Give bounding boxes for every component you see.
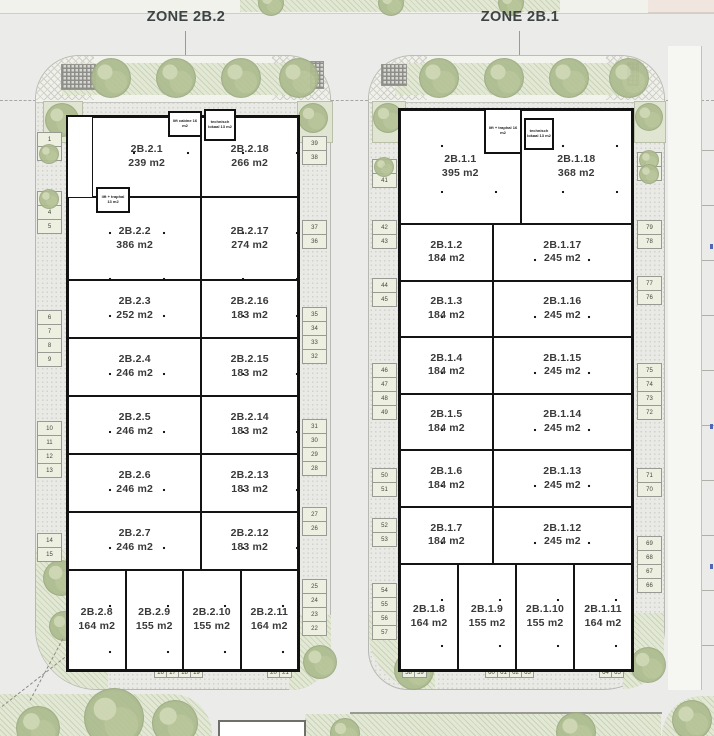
- stall-number: 30: [311, 438, 318, 444]
- parking-stall-26: 26: [302, 521, 327, 536]
- unit-2B.2.8[interactable]: 2B.2.8164 m2: [68, 570, 126, 670]
- site-plan: ZONE 2B.2 ZONE 2B.1: [0, 0, 714, 736]
- parking-stall-75: 75: [637, 363, 662, 378]
- parking-stall-68: 68: [637, 550, 662, 565]
- stall-number: 34: [311, 326, 318, 332]
- stall-number: 10: [46, 426, 53, 432]
- parking-stall-44: 44: [372, 278, 397, 293]
- unit-area: 155 m2: [136, 620, 173, 634]
- parking-stall-8: 8: [37, 338, 62, 353]
- unit-2B.1.12[interactable]: 2B.1.12245 m2: [493, 507, 632, 564]
- stall-number: 29: [311, 452, 318, 458]
- unit-id: 2B.1.14: [543, 408, 581, 422]
- unit-2B.1.3[interactable]: 2B.1.3184 m2: [400, 281, 493, 338]
- utility-room-lift: lift cabine 16 m2: [168, 111, 202, 137]
- unit-row: 2B.1.5184 m22B.1.14245 m2: [400, 394, 632, 451]
- stall-number: 15: [46, 552, 53, 558]
- tree-icon: [221, 58, 261, 98]
- stall-number: 26: [311, 526, 318, 532]
- unit-area: 245 m2: [544, 309, 581, 323]
- tree-icon: [630, 647, 666, 683]
- parking-stall-30: 30: [302, 433, 327, 448]
- unit-id: 2B.2.5: [119, 411, 151, 425]
- tree-icon: [39, 144, 59, 164]
- stall-number: 66: [646, 583, 653, 589]
- parking-group: 31302928: [302, 420, 327, 476]
- unit-area: 395 m2: [442, 167, 479, 181]
- zone-leader-line: [185, 31, 186, 55]
- unit-row: 2B.2.7246 m22B.2.12183 m2: [68, 512, 298, 570]
- parking-stall-67: 67: [637, 564, 662, 579]
- unit-2B.1.15[interactable]: 2B.1.15245 m2: [493, 337, 632, 394]
- parking-stall-66: 66: [637, 578, 662, 593]
- unit-2B.1.11[interactable]: 2B.1.11164 m2: [574, 564, 632, 670]
- unit-area: 184 m2: [428, 309, 465, 323]
- zone-label-2b1: ZONE 2B.1: [481, 9, 560, 25]
- parking-stall-70: 70: [637, 482, 662, 497]
- tick-mark: [702, 535, 714, 536]
- unit-2B.2.11[interactable]: 2B.2.11164 m2: [241, 570, 299, 670]
- stall-number: 72: [646, 410, 653, 416]
- unit-2B.1.10[interactable]: 2B.1.10155 m2: [516, 564, 574, 670]
- tree-icon: [549, 58, 589, 98]
- unit-id: 2B.2.9: [138, 606, 170, 620]
- utility-marker: [710, 244, 713, 249]
- unit-2B.1.8[interactable]: 2B.1.8164 m2: [400, 564, 458, 670]
- stall-number: 67: [646, 569, 653, 575]
- unit-area: 155 m2: [527, 617, 564, 631]
- unit-area: 246 m2: [116, 367, 153, 381]
- unit-id: 2B.2.12: [231, 527, 269, 541]
- parking-stall-31: 31: [302, 419, 327, 434]
- parking-stall-55: 55: [372, 597, 397, 612]
- parking-stall-5: 5: [37, 219, 62, 234]
- unit-area: 184 m2: [428, 365, 465, 379]
- parking-stall-53: 53: [372, 532, 397, 547]
- unit-id: 2B.2.13: [231, 469, 269, 483]
- tree-icon: [279, 58, 319, 98]
- unit-area: 266 m2: [231, 157, 268, 171]
- unit-2B.2.10[interactable]: 2B.2.10155 m2: [183, 570, 241, 670]
- unit-area: 245 m2: [544, 422, 581, 436]
- unit-row: 2B.1.3184 m22B.1.16245 m2: [400, 281, 632, 338]
- parking-stall-42: 42: [372, 220, 397, 235]
- stall-number: 37: [311, 225, 318, 231]
- unit-2B.1.16[interactable]: 2B.1.16245 m2: [493, 281, 632, 338]
- unit-2B.2.9[interactable]: 2B.2.9155 m2: [126, 570, 184, 670]
- parking-stall-9: 9: [37, 352, 62, 367]
- parking-stall-23: 23: [302, 607, 327, 622]
- unit-2B.2.2[interactable]: 2B.2.2386 m2: [68, 197, 201, 280]
- stall-number: 22: [311, 626, 318, 632]
- parking-stall-49: 49: [372, 405, 397, 420]
- stall-number: 25: [311, 584, 318, 590]
- parking-group: 46474849: [372, 364, 397, 420]
- parking-group: 7978: [637, 221, 662, 249]
- unit-2B.1.9[interactable]: 2B.1.9155 m2: [458, 564, 516, 670]
- unit-area: 184 m2: [428, 535, 465, 549]
- unit-2B.2.6[interactable]: 2B.2.6246 m2: [68, 454, 201, 512]
- stall-number: 7: [48, 329, 51, 335]
- unit-id: 2B.1.17: [543, 239, 581, 253]
- unit-2B.2.17[interactable]: 2B.2.17274 m2: [201, 197, 298, 280]
- parking-stall-57: 57: [372, 625, 397, 640]
- parking-group: 6789: [37, 311, 62, 367]
- parking-stall-79: 79: [637, 220, 662, 235]
- stall-number: 13: [46, 468, 53, 474]
- unit-area: 164 m2: [78, 620, 115, 634]
- unit-area: 368 m2: [558, 167, 595, 181]
- parking-stall-48: 48: [372, 391, 397, 406]
- stall-number: 47: [381, 382, 388, 388]
- right-sidewalk: [668, 46, 701, 690]
- stall-number: 75: [646, 368, 653, 374]
- unit-area: 246 m2: [116, 483, 153, 497]
- parking-group: 4445: [372, 279, 397, 307]
- stall-number: 23: [311, 612, 318, 618]
- tick-mark: [702, 260, 714, 261]
- stall-number: 27: [311, 512, 318, 518]
- unit-2B.1.4[interactable]: 2B.1.4184 m2: [400, 337, 493, 394]
- front-garden-band: [35, 55, 331, 103]
- stall-number: 9: [48, 357, 51, 363]
- stall-number: 43: [381, 239, 388, 245]
- parking-stall-14: 14: [37, 533, 62, 548]
- unit-id: 2B.2.7: [119, 527, 151, 541]
- stall-number: 73: [646, 396, 653, 402]
- stall-number: 8: [48, 343, 51, 349]
- parking-stall-37: 37: [302, 220, 327, 235]
- unit-2B.1.14[interactable]: 2B.1.14245 m2: [493, 394, 632, 451]
- unit-row: 2B.2.3252 m22B.2.16183 m2: [68, 280, 298, 338]
- top-pink-strip: [648, 0, 714, 13]
- unit-2B.2.13[interactable]: 2B.2.13183 m2: [201, 454, 298, 512]
- parking-stall-33: 33: [302, 335, 327, 350]
- stall-number: 69: [646, 541, 653, 547]
- block-zone-2b2: 2B.2.1239 m22B.2.18266 m2 2B.2.2386 m22B…: [35, 55, 331, 690]
- unit-id: 2B.1.15: [543, 352, 581, 366]
- unit-area: 184 m2: [428, 252, 465, 266]
- tree-icon: [635, 103, 663, 131]
- unit-id: 2B.1.8: [413, 603, 445, 617]
- unit-area: 274 m2: [231, 239, 268, 253]
- unit-2B.2.16[interactable]: 2B.2.16183 m2: [201, 280, 298, 338]
- tick-mark: [702, 480, 714, 481]
- unit-area: 245 m2: [544, 535, 581, 549]
- parking-stall-6: 6: [37, 310, 62, 325]
- unit-2B.1.13[interactable]: 2B.1.13245 m2: [493, 450, 632, 507]
- tree-icon: [609, 58, 649, 98]
- unit-id: 2B.1.12: [543, 522, 581, 536]
- stall-number: 24: [311, 598, 318, 604]
- tree-icon: [639, 164, 659, 184]
- unit-id: 2B.1.11: [584, 603, 622, 617]
- utility-room-technical: technisch lokaal 13 m2: [204, 109, 236, 141]
- stall-number: 53: [381, 537, 388, 543]
- tick-mark: [702, 370, 714, 371]
- stall-number: 68: [646, 555, 653, 561]
- unit-row: 2B.1.4184 m22B.1.15245 m2: [400, 337, 632, 394]
- unit-2B.2.7[interactable]: 2B.2.7246 m2: [68, 512, 201, 570]
- unit-id: 2B.1.7: [430, 522, 462, 536]
- parking-stall-56: 56: [372, 611, 397, 626]
- stall-number: 55: [381, 602, 388, 608]
- unit-area: 155 m2: [469, 617, 506, 631]
- stall-number: 76: [646, 295, 653, 301]
- tree-icon: [156, 58, 196, 98]
- stall-number: 33: [311, 340, 318, 346]
- utility-room-lift: lift + traphal 16 m2: [484, 108, 522, 154]
- bike-rack: [381, 64, 407, 86]
- tree-icon: [298, 103, 328, 133]
- tree-icon: [91, 58, 131, 98]
- stall-number: 70: [646, 487, 653, 493]
- unit-id: 2B.1.16: [543, 295, 581, 309]
- parking-stall-29: 29: [302, 447, 327, 462]
- zone-leader-line: [519, 31, 520, 55]
- stall-number: 57: [381, 630, 388, 636]
- parking-tree-cell: [637, 166, 662, 181]
- unit-2B.2.4[interactable]: 2B.2.4246 m2: [68, 338, 201, 396]
- utility-room-technical: technisch lokaal 13 m2: [524, 118, 554, 150]
- parking-stall-36: 36: [302, 234, 327, 249]
- unit-area: 184 m2: [428, 479, 465, 493]
- unit-2B.1.5[interactable]: 2B.1.5184 m2: [400, 394, 493, 451]
- parking-stall-74: 74: [637, 377, 662, 392]
- unit-id: 2B.2.18: [231, 143, 269, 157]
- parking-group: 7170: [637, 469, 662, 497]
- unit-2B.1.7[interactable]: 2B.1.7184 m2: [400, 507, 493, 564]
- parking-group: 4243: [372, 221, 397, 249]
- unit-2B.2.12[interactable]: 2B.2.12183 m2: [201, 512, 298, 570]
- unit-2B.1.6[interactable]: 2B.1.6184 m2: [400, 450, 493, 507]
- stall-number: 31: [311, 424, 318, 430]
- unit-area: 164 m2: [585, 617, 622, 631]
- unit-row: 2B.1.7184 m22B.1.12245 m2: [400, 507, 632, 564]
- parking-stall-78: 78: [637, 234, 662, 249]
- parking-group: 2726: [302, 508, 327, 536]
- unit-area: 183 m2: [231, 367, 268, 381]
- unit-area: 164 m2: [251, 620, 288, 634]
- stall-number: 71: [646, 473, 653, 479]
- unit-area: 245 m2: [544, 479, 581, 493]
- parking-stall-2: 2: [37, 146, 62, 161]
- stall-number: 32: [311, 354, 318, 360]
- unit-id: 2B.1.5: [430, 408, 462, 422]
- stall-number: 28: [311, 466, 318, 472]
- parking-group: 3736: [302, 221, 327, 249]
- stall-number: 78: [646, 239, 653, 245]
- front-garden-band: [368, 55, 665, 103]
- parking-group: 4041: [372, 160, 397, 188]
- parking-group: 345: [37, 192, 62, 234]
- parking-stall-22: 22: [302, 621, 327, 636]
- unit-row: 2B.2.5246 m22B.2.14183 m2: [68, 396, 298, 454]
- zone-label-2b2: ZONE 2B.2: [147, 9, 226, 25]
- unit-2B.2.5[interactable]: 2B.2.5246 m2: [68, 396, 201, 454]
- unit-2B.2.3[interactable]: 2B.2.3252 m2: [68, 280, 201, 338]
- unit-id: 2B.2.16: [231, 295, 269, 309]
- parking-stall-46: 46: [372, 363, 397, 378]
- parking-stall-34: 34: [302, 321, 327, 336]
- parking-stall-77: 77: [637, 276, 662, 291]
- tree-icon: [484, 58, 524, 98]
- parking-group: 25242322: [302, 580, 327, 636]
- unit-area: 183 m2: [231, 483, 268, 497]
- parking-stall-52: 52: [372, 518, 397, 533]
- parking-group: 3938: [302, 137, 327, 165]
- tree-icon: [672, 700, 712, 736]
- parking-stall-54: 54: [372, 583, 397, 598]
- unit-2B.2.15[interactable]: 2B.2.15183 m2: [201, 338, 298, 396]
- unit-area: 183 m2: [231, 425, 268, 439]
- unit-id: 2B.1.3: [430, 295, 462, 309]
- parking-stall-51: 51: [372, 482, 397, 497]
- parking-group: 1415: [37, 534, 62, 562]
- unit-id: 2B.2.6: [119, 469, 151, 483]
- stall-number: 6: [48, 315, 51, 321]
- unit-row: 2B.1.2184 m22B.1.17245 m2: [400, 224, 632, 281]
- parking-stall-40: 40: [372, 159, 397, 174]
- unit-id: 2B.1.9: [471, 603, 503, 617]
- utility-marker: [710, 424, 713, 429]
- parking-group: [637, 153, 662, 181]
- stall-number: 45: [381, 297, 388, 303]
- unit-area: 183 m2: [231, 309, 268, 323]
- unit-id: 2B.1.2: [430, 239, 462, 253]
- stall-number: 54: [381, 588, 388, 594]
- parking-group: 7776: [637, 277, 662, 305]
- right-kerb-line: [701, 46, 702, 690]
- unit-area: 184 m2: [428, 422, 465, 436]
- stall-number: 52: [381, 523, 388, 529]
- parking-stall-50: 50: [372, 468, 397, 483]
- unit-id: 2B.2.1: [131, 143, 163, 157]
- stall-number: 46: [381, 368, 388, 374]
- unit-id: 2B.1.1: [444, 153, 476, 167]
- stall-number: 49: [381, 410, 388, 416]
- parking-stall-27: 27: [302, 507, 327, 522]
- property-dash-line: [0, 100, 36, 101]
- unit-id: 2B.2.15: [231, 353, 269, 367]
- stall-number: 39: [311, 141, 318, 147]
- tick-mark: [702, 205, 714, 206]
- stall-number: 41: [381, 178, 388, 184]
- stall-number: 11: [46, 440, 52, 446]
- parking-stall-71: 71: [637, 468, 662, 483]
- unit-area: 245 m2: [544, 252, 581, 266]
- parking-group: 5253: [372, 519, 397, 547]
- unit-row: 2B.1.6184 m22B.1.13245 m2: [400, 450, 632, 507]
- building-2b1: 2B.1.1395 m22B.1.18368 m2 2B.1.2184 m22B…: [398, 108, 634, 672]
- stall-number: 50: [381, 473, 388, 479]
- parking-group: 12: [37, 133, 62, 161]
- parking-group: 35343332: [302, 308, 327, 364]
- tick-mark: [702, 315, 714, 316]
- parking-stall-45: 45: [372, 292, 397, 307]
- unit-2B.1.17[interactable]: 2B.1.17245 m2: [493, 224, 632, 281]
- unit-row: 2B.2.8164 m22B.2.9155 m22B.2.10155 m22B.…: [68, 570, 298, 670]
- tree-icon: [419, 58, 459, 98]
- property-dash-line: [331, 100, 368, 101]
- parking-stall-35: 35: [302, 307, 327, 322]
- parking-stall-72: 72: [637, 405, 662, 420]
- unit-2B.1.2[interactable]: 2B.1.2184 m2: [400, 224, 493, 281]
- unit-id: 2B.2.17: [231, 225, 269, 239]
- stall-number: 74: [646, 382, 653, 388]
- tick-mark: [702, 645, 714, 646]
- parking-stall-28: 28: [302, 461, 327, 476]
- stall-number: 44: [381, 283, 388, 289]
- unit-id: 2B.2.2: [119, 225, 151, 239]
- stall-number: 35: [311, 312, 318, 318]
- stall-number: 14: [46, 538, 53, 544]
- stall-number: 38: [311, 155, 318, 161]
- stall-number: 56: [381, 616, 388, 622]
- parking-stall-15: 15: [37, 547, 62, 562]
- unit-area: 246 m2: [116, 541, 153, 555]
- parking-stall-47: 47: [372, 377, 397, 392]
- tree-icon: [39, 189, 59, 209]
- unit-id: 2B.2.4: [119, 353, 151, 367]
- unit-area: 164 m2: [411, 617, 448, 631]
- unit-row: 2B.1.8164 m22B.1.9155 m22B.1.10155 m22B.…: [400, 564, 632, 670]
- unit-2B.2.14[interactable]: 2B.2.14183 m2: [201, 396, 298, 454]
- building-2b2: 2B.2.1239 m22B.2.18266 m2 2B.2.2386 m22B…: [66, 115, 300, 672]
- parking-stall-76: 76: [637, 290, 662, 305]
- unit-area: 386 m2: [116, 239, 153, 253]
- stall-number: 51: [381, 487, 388, 493]
- parking-stall-38: 38: [302, 150, 327, 165]
- parking-stall-7: 7: [37, 324, 62, 339]
- parking-group: 10111213: [37, 422, 62, 478]
- unit-area: 246 m2: [116, 425, 153, 439]
- unit-id: 2B.2.14: [231, 411, 269, 425]
- stall-number: 77: [646, 281, 653, 287]
- unit-id: 2B.2.3: [119, 295, 151, 309]
- stall-number: 4: [48, 210, 51, 216]
- unit-id: 2B.1.18: [557, 153, 595, 167]
- stall-number: 48: [381, 396, 388, 402]
- unit-area: 155 m2: [193, 620, 230, 634]
- tree-icon: [374, 157, 394, 177]
- unit-area: 239 m2: [128, 157, 165, 171]
- unit-area: 245 m2: [544, 365, 581, 379]
- stall-number: 12: [46, 454, 53, 460]
- parking-stall-32: 32: [302, 349, 327, 364]
- parking-stall-25: 25: [302, 579, 327, 594]
- unit-id: 2B.2.11: [250, 606, 288, 620]
- unit-area: 252 m2: [116, 309, 153, 323]
- unit-id: 2B.1.4: [430, 352, 462, 366]
- tree-icon: [303, 645, 337, 679]
- parking-group: 69686766: [637, 537, 662, 593]
- parking-stall-43: 43: [372, 234, 397, 249]
- unit-id: 2B.2.8: [81, 606, 113, 620]
- unit-id: 2B.1.6: [430, 465, 462, 479]
- unit-id: 2B.1.13: [543, 465, 581, 479]
- stall-number: 79: [646, 225, 653, 231]
- utility-room-stairs: lift + traphal 13 m2: [96, 187, 130, 213]
- parking-group: 75747372: [637, 364, 662, 420]
- stall-number: 36: [311, 239, 318, 245]
- parking-group: 54555657: [372, 584, 397, 640]
- block-zone-2b1: 2B.1.1395 m22B.1.18368 m2 2B.1.2184 m22B…: [368, 55, 665, 690]
- parking-stall-10: 10: [37, 421, 62, 436]
- unit-row: 2B.2.4246 m22B.2.15183 m2: [68, 338, 298, 396]
- parking-stall-11: 11: [37, 435, 62, 450]
- stall-number: 42: [381, 225, 388, 231]
